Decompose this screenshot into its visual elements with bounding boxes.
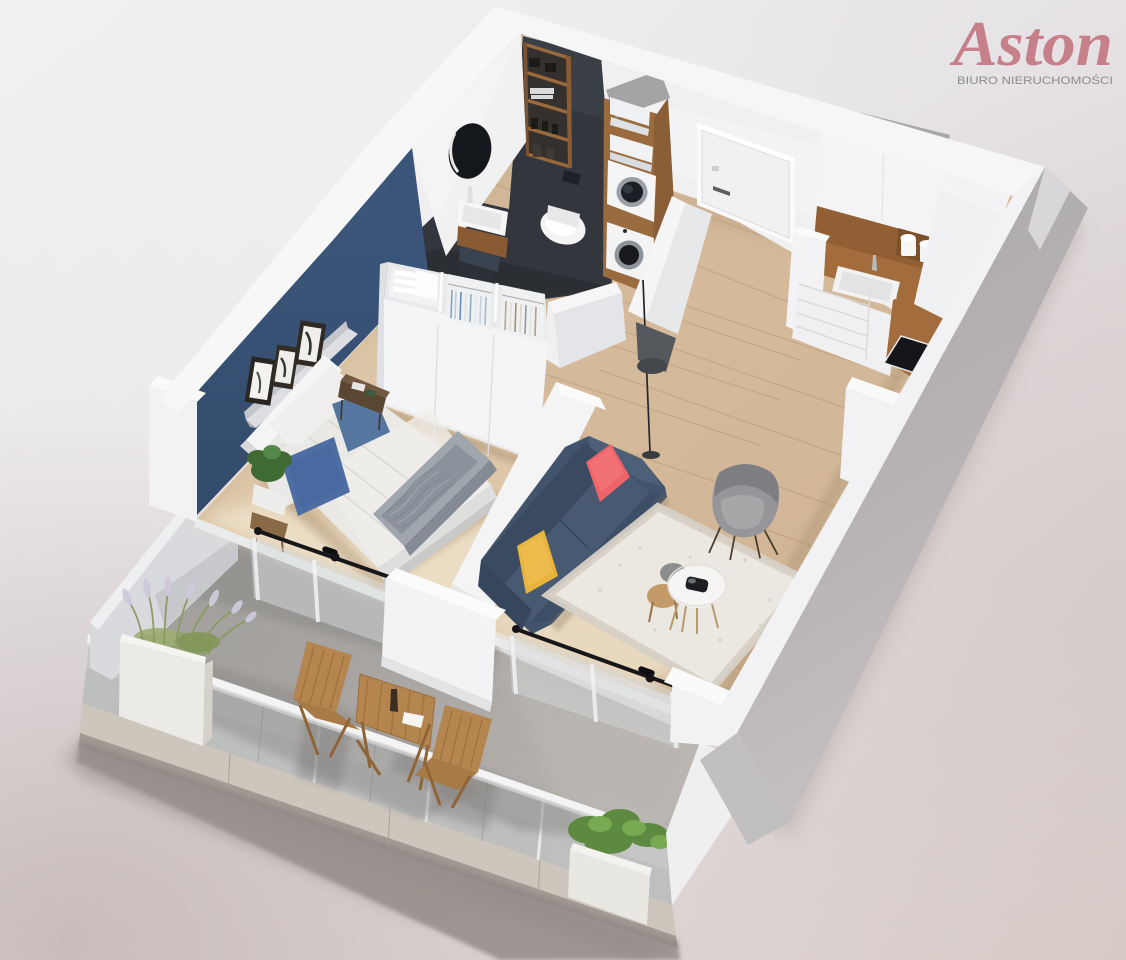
svg-text:BIURO NIERUCHOMOŚCI: BIURO NIERUCHOMOŚCI bbox=[957, 74, 1113, 87]
svg-text:Aston: Aston bbox=[949, 8, 1113, 79]
